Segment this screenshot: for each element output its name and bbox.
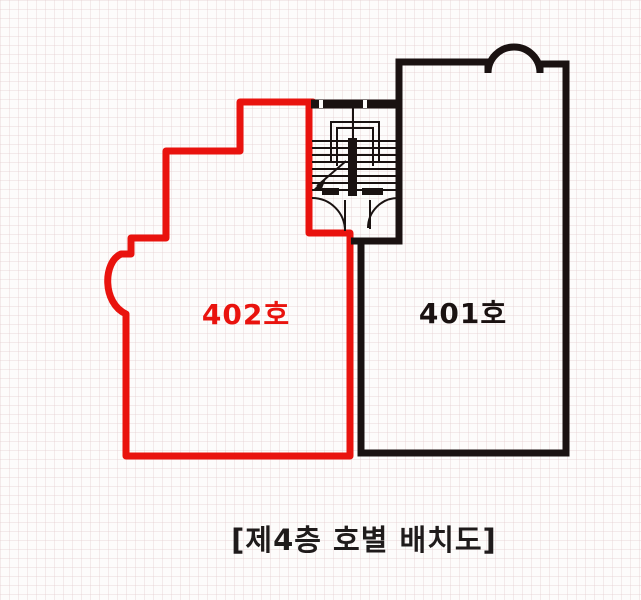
stair-top-wall-notch-2 — [363, 100, 367, 108]
door-swing-right — [368, 198, 398, 228]
stair-top-wall-notch-1 — [319, 100, 323, 108]
floorplan-canvas: 402호 401호 [제4층 호별 배치도] — [0, 0, 641, 600]
stair-newel — [348, 138, 357, 196]
stair-foot-right — [362, 188, 383, 195]
floorplan-caption: [제4층 호별 배치도] — [231, 523, 497, 557]
unit-401-label: 401호 — [419, 297, 507, 330]
door-swing-left — [312, 198, 345, 231]
floorplan-svg: 402호 401호 [제4층 호별 배치도] — [0, 0, 641, 600]
staircase — [311, 100, 400, 231]
unit-402-label: 402호 — [202, 298, 290, 331]
stair-foot-left — [322, 188, 339, 195]
